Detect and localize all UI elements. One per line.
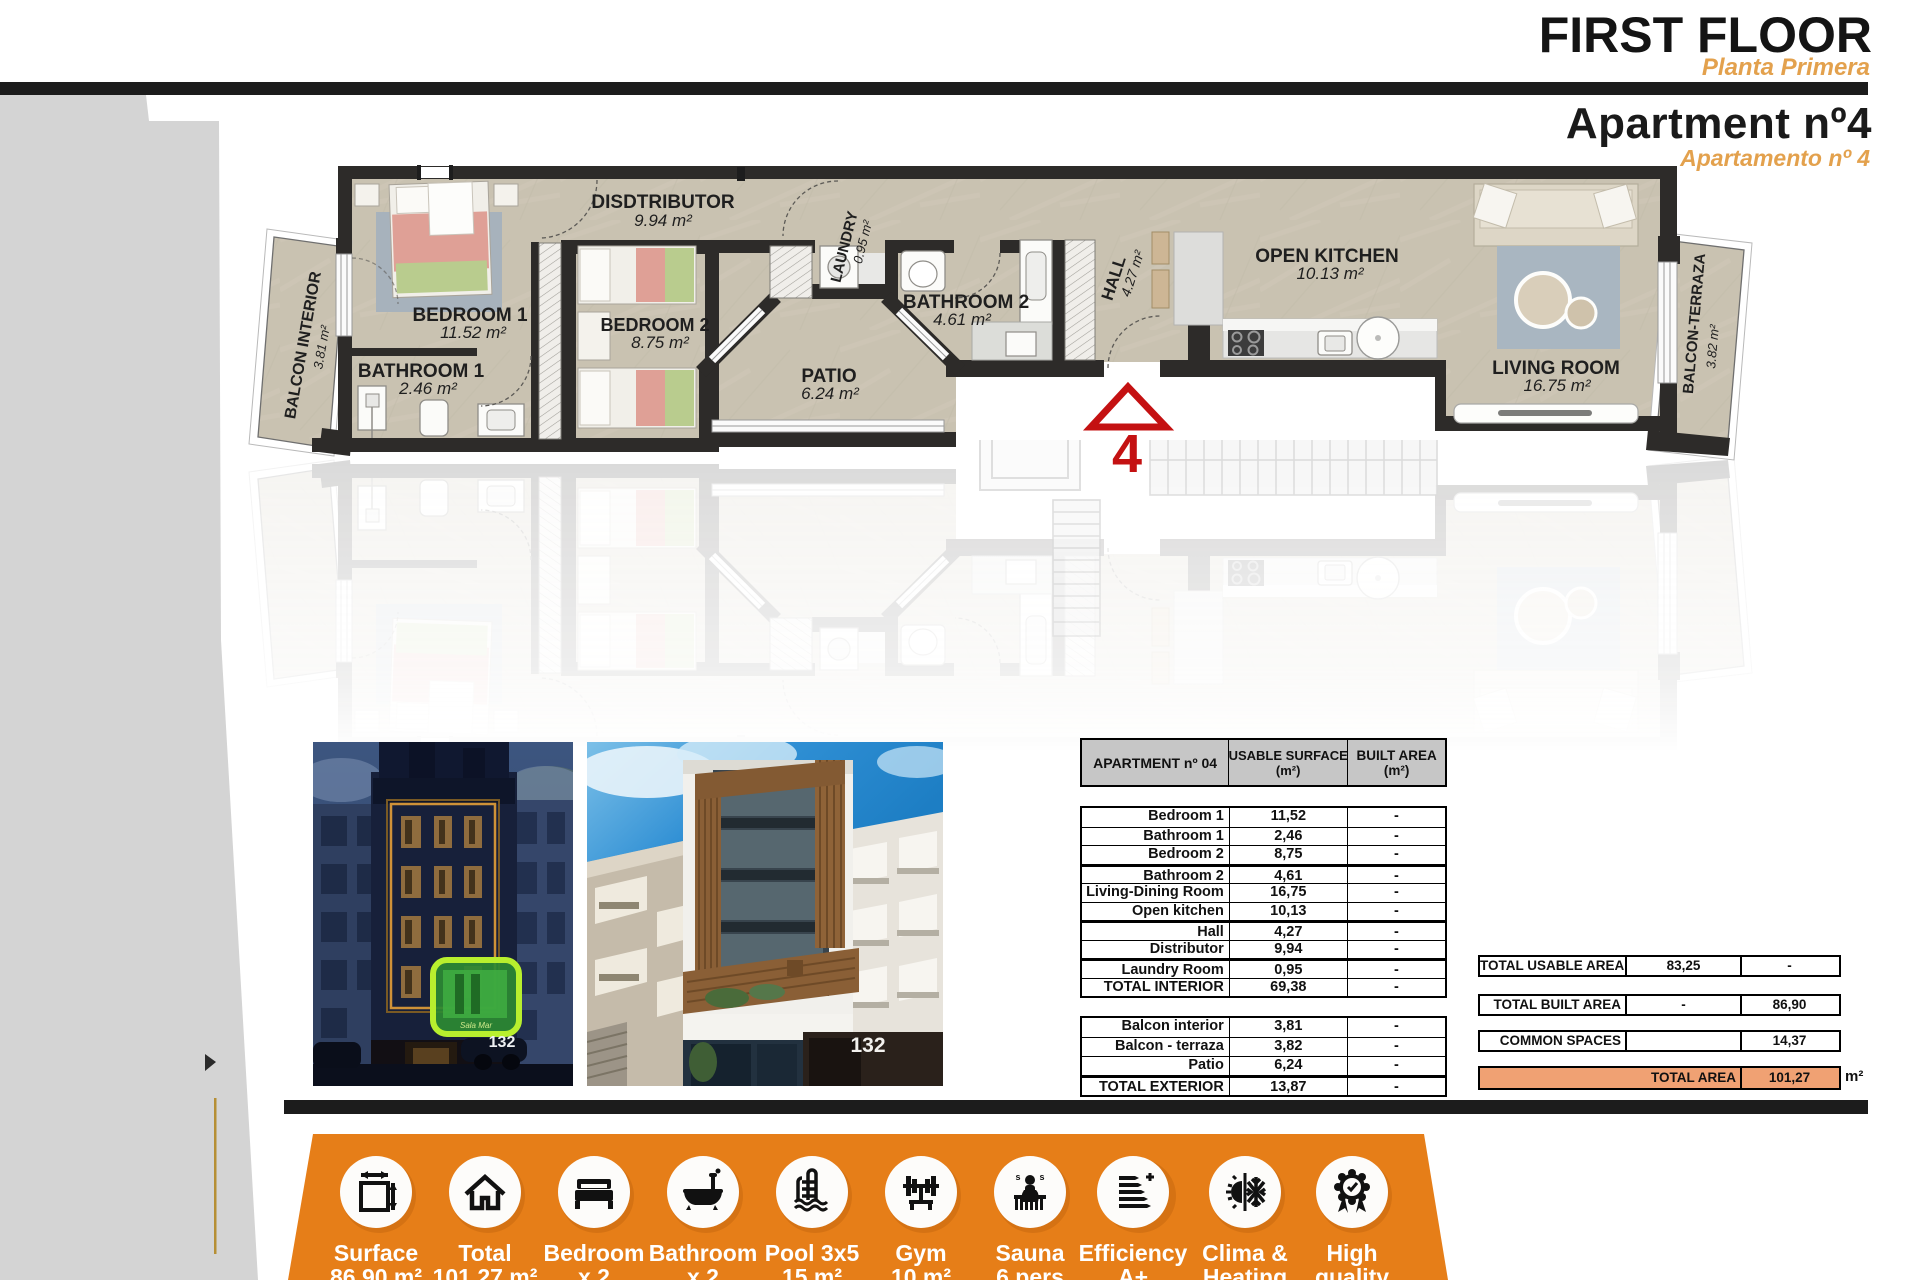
svg-text:101,27 m²: 101,27 m²	[433, 1264, 538, 1280]
svg-text:Gym: Gym	[895, 1240, 946, 1266]
svg-text:BEDROOM 2: BEDROOM 2	[600, 315, 709, 335]
svg-text:Sala Mar: Sala Mar	[460, 1021, 492, 1030]
svg-text:Sauna: Sauna	[995, 1240, 1064, 1266]
svg-text:Pool 3x5: Pool 3x5	[765, 1240, 860, 1266]
svg-text:s: s	[1039, 1172, 1044, 1182]
svg-text:10 m²: 10 m²	[891, 1264, 951, 1280]
svg-text:A+: A+	[1118, 1264, 1148, 1280]
svg-text:132: 132	[850, 1034, 885, 1057]
svg-text:2.46 m²: 2.46 m²	[398, 379, 458, 398]
svg-text:Clima &: Clima &	[1202, 1240, 1288, 1266]
svg-text:High: High	[1326, 1240, 1377, 1266]
svg-text:Heating: Heating	[1203, 1264, 1287, 1280]
svg-text:9.94 m²: 9.94 m²	[634, 211, 693, 230]
svg-text:x 2: x 2	[578, 1264, 610, 1280]
svg-text:Total: Total	[458, 1240, 511, 1266]
svg-text:Surface: Surface	[334, 1240, 418, 1266]
svg-text:x 2: x 2	[687, 1264, 719, 1280]
svg-text:16.75 m²: 16.75 m²	[1523, 376, 1591, 395]
svg-text:4: 4	[1112, 424, 1142, 484]
svg-text:10.13 m²: 10.13 m²	[1296, 264, 1364, 283]
svg-text:8.75 m²: 8.75 m²	[631, 333, 690, 352]
svg-text:15 m²: 15 m²	[782, 1264, 842, 1280]
svg-text:Bathroom: Bathroom	[649, 1240, 758, 1266]
svg-text:6 pers: 6 pers	[996, 1264, 1064, 1280]
svg-text:DISDTRIBUTOR: DISDTRIBUTOR	[591, 192, 734, 213]
svg-text:86,90 m²: 86,90 m²	[330, 1264, 422, 1280]
svg-text:4.61 m²: 4.61 m²	[933, 310, 992, 329]
svg-text:quality: quality	[1315, 1264, 1389, 1280]
svg-text:6.24 m²: 6.24 m²	[801, 384, 860, 403]
svg-text:11.52 m²: 11.52 m²	[440, 323, 507, 342]
svg-text:Bedroom: Bedroom	[544, 1240, 645, 1266]
svg-text:132: 132	[489, 1034, 516, 1051]
svg-text:s: s	[1015, 1172, 1020, 1182]
svg-text:Efficiency: Efficiency	[1079, 1240, 1188, 1266]
